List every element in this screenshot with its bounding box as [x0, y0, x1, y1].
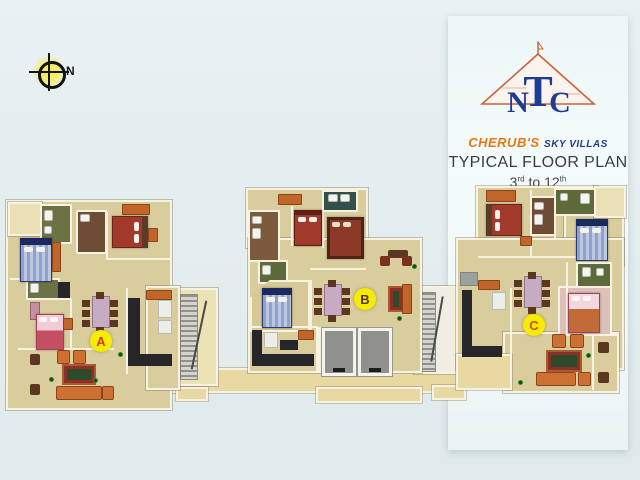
corridor-balcony: [434, 387, 464, 398]
toilet-icon: [262, 265, 271, 275]
sofa: [536, 372, 576, 386]
dining-chairs: [82, 300, 90, 307]
chair: [30, 354, 40, 365]
armchair: [102, 386, 114, 400]
kitchen-counter: [128, 354, 172, 366]
armchair: [578, 372, 591, 386]
unit-a-badge: A: [90, 330, 112, 352]
unit-c-entry: [458, 356, 510, 388]
armchair: [57, 350, 70, 364]
sofa: [56, 386, 102, 400]
plant-icon: [93, 378, 98, 383]
carpet: [62, 364, 96, 385]
kitchen-cabinet: [478, 280, 500, 290]
bed-red-b: [294, 210, 322, 246]
kitchen-island: [280, 340, 298, 350]
toilet-icon: [534, 214, 543, 225]
appliance-icon: [158, 320, 172, 334]
armchair: [570, 334, 584, 348]
unit-b-badge: B: [354, 288, 376, 310]
carpet: [546, 350, 582, 372]
sink-icon: [80, 214, 90, 222]
study-chair: [402, 256, 412, 266]
toilet-icon: [340, 194, 350, 202]
utility-block: [58, 282, 70, 298]
plant-icon: [586, 353, 591, 358]
wall-divider: [76, 212, 78, 252]
bedside-table: [63, 318, 73, 330]
fridge-icon: [492, 292, 506, 310]
bed-pink-c: [568, 293, 600, 333]
bedside-table: [520, 236, 532, 246]
wall-divider: [291, 206, 293, 246]
wall-divider: [554, 190, 556, 238]
dining-table: [324, 284, 342, 316]
appliance-icon: [460, 272, 478, 286]
unit-c-balcony: [596, 188, 624, 216]
wardrobe: [486, 190, 516, 202]
wardrobe: [52, 242, 61, 272]
plant-icon: [412, 264, 417, 269]
chair: [30, 384, 40, 395]
wall-divider: [106, 212, 108, 258]
kitchen-cabinet: [146, 290, 172, 300]
kitchen-cabinet: [298, 330, 314, 340]
kitchen-counter: [128, 298, 140, 356]
wall-divider: [26, 298, 72, 300]
dining-set-b: [314, 282, 350, 316]
plant-icon: [49, 377, 54, 382]
sink-icon: [252, 216, 262, 224]
wardrobe: [278, 194, 302, 205]
toilet-icon: [582, 267, 591, 277]
bedside-table: [148, 228, 158, 242]
stairs-icon: [420, 292, 436, 372]
sink-icon: [596, 268, 604, 276]
toilet-icon: [44, 210, 53, 221]
corridor-balcony: [318, 389, 420, 401]
plant-icon: [518, 380, 523, 385]
fridge-icon: [158, 300, 172, 318]
bed-pink-a: [36, 314, 64, 350]
wardrobe: [122, 204, 150, 215]
chair: [598, 372, 609, 383]
bed-maroon-b: [327, 217, 364, 259]
sink-icon: [328, 194, 338, 202]
elevator: [358, 328, 392, 376]
sink-icon: [44, 226, 52, 234]
sideboard: [402, 284, 412, 314]
dining-chairs: [514, 280, 522, 287]
wall-divider: [592, 336, 594, 390]
wall-divider: [310, 268, 366, 270]
dining-table: [92, 296, 110, 328]
bed-blue-b: [262, 288, 292, 328]
plant-icon: [397, 316, 402, 321]
sink-icon: [560, 193, 568, 201]
corridor-balcony: [178, 389, 206, 399]
chair: [598, 342, 609, 353]
wall-divider: [322, 190, 324, 248]
kitchen-counter: [252, 354, 314, 366]
armchair: [552, 334, 566, 348]
bed-red-a: [112, 216, 148, 248]
wall-divider: [558, 334, 618, 336]
toilet-icon: [30, 283, 39, 293]
unit-a-balcony: [10, 204, 40, 234]
stairs-icon: [180, 294, 198, 380]
wall-divider: [106, 258, 170, 260]
dining-table: [524, 276, 542, 308]
unit-c-badge: C: [523, 314, 545, 336]
study-chair: [380, 256, 390, 266]
dining-set-a: [82, 294, 118, 328]
fridge-icon: [264, 332, 278, 348]
wall-divider: [530, 190, 532, 256]
plant-icon: [118, 352, 123, 357]
bed-red-c: [486, 204, 522, 236]
bed-blue-a: [20, 238, 52, 282]
dining-chairs: [314, 288, 322, 295]
kitchen-counter: [462, 346, 502, 357]
toilet-icon: [252, 228, 261, 239]
dining-set-c: [514, 274, 550, 308]
wall-divider: [510, 288, 512, 366]
elevator: [322, 328, 356, 376]
sink-icon: [534, 202, 544, 210]
armchair: [73, 350, 86, 364]
toilet-icon: [580, 193, 590, 204]
bed-blue-c: [576, 219, 608, 261]
floor-plan: A B C: [0, 0, 640, 480]
